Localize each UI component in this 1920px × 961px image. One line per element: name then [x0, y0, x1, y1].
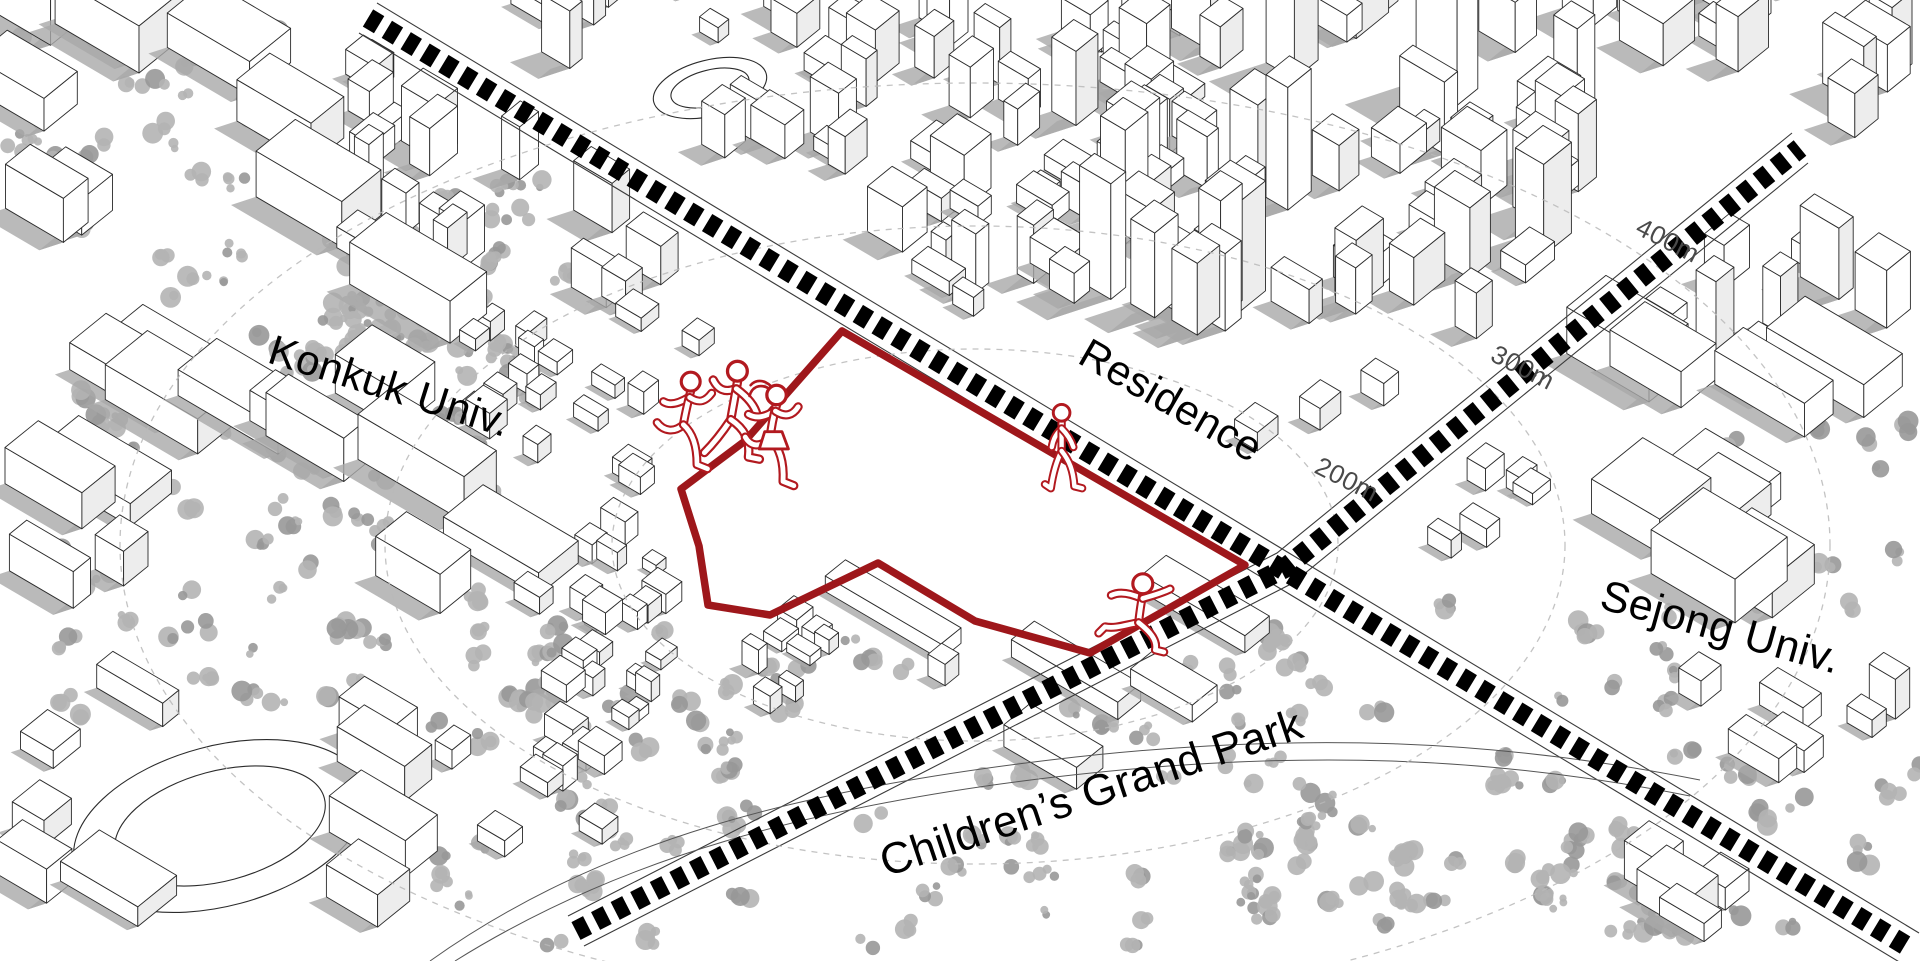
- tree-blob: [1847, 851, 1868, 872]
- tree-blob: [1023, 871, 1035, 883]
- tree-blob: [902, 658, 915, 671]
- tree-blob: [198, 613, 214, 629]
- tree-blob: [226, 184, 234, 192]
- tree-blob: [1293, 777, 1307, 791]
- tree-blob: [295, 518, 302, 525]
- tree-blob: [1318, 811, 1327, 820]
- tree-blob: [252, 687, 264, 699]
- tree-blob: [268, 502, 282, 516]
- tree-blob: [722, 689, 729, 696]
- building-face: [976, 224, 989, 294]
- tree-blob: [1757, 815, 1778, 836]
- building-face: [1288, 69, 1311, 211]
- tree-blob: [1050, 872, 1059, 881]
- tree-blob: [430, 879, 443, 892]
- tree-blob: [568, 875, 587, 894]
- tree-blob: [189, 502, 200, 513]
- tree-blob: [430, 712, 448, 730]
- tree-blob: [195, 173, 208, 186]
- tree-blob: [1359, 704, 1375, 720]
- tree-blob: [933, 882, 941, 890]
- tree-blob: [0, 138, 15, 153]
- tree-blob: [511, 199, 529, 217]
- tree-blob: [747, 805, 762, 820]
- tree-blob: [97, 138, 110, 151]
- tree-blob: [1287, 653, 1305, 671]
- tree-blob: [567, 856, 580, 869]
- tree-blob: [1238, 829, 1253, 844]
- tree-blob: [159, 79, 170, 90]
- tree-blob: [1687, 742, 1702, 757]
- tree-blob: [1141, 912, 1154, 925]
- tree-blob: [1351, 815, 1370, 834]
- tree-blob: [225, 239, 234, 248]
- tree-blob: [525, 706, 542, 723]
- tree-blob: [1856, 427, 1876, 447]
- tree-blob: [1499, 778, 1510, 789]
- tree-blob: [323, 506, 343, 526]
- tree-blob: [635, 930, 655, 950]
- tree-blob: [582, 780, 591, 789]
- tree-blob: [220, 278, 228, 286]
- tree-blob: [187, 672, 200, 685]
- tree-blob: [1589, 624, 1604, 639]
- building-face: [1052, 37, 1076, 125]
- tree-blob: [262, 693, 281, 712]
- tree-blob: [485, 252, 496, 263]
- tree-blob: [727, 762, 738, 773]
- tree-blob: [545, 626, 554, 635]
- tree-blob: [1265, 907, 1281, 923]
- tree-blob: [239, 172, 250, 183]
- tree-blob: [263, 533, 274, 544]
- tree-blob: [1872, 460, 1889, 477]
- tree-blob: [1004, 859, 1020, 875]
- tree-blob: [222, 248, 232, 258]
- tree-blob: [1224, 668, 1237, 681]
- tree-blob: [1129, 731, 1143, 745]
- tree-blob: [1885, 541, 1902, 558]
- tree-blob: [231, 681, 252, 702]
- tree-blob: [1389, 890, 1407, 908]
- tree-blob: [854, 814, 873, 833]
- tree-blob: [181, 620, 194, 633]
- building-face: [1839, 217, 1853, 300]
- tree-blob: [1126, 864, 1144, 882]
- tree-blob: [1844, 602, 1860, 618]
- tree-blob: [1244, 780, 1252, 788]
- tree-blob: [916, 884, 930, 898]
- tree-blob: [379, 633, 391, 645]
- tree-blob: [874, 806, 888, 820]
- tree-blob: [1240, 876, 1250, 886]
- tree-blob: [1610, 821, 1620, 831]
- tree-blob: [1256, 831, 1264, 839]
- tree-blob: [1125, 938, 1140, 953]
- tree-blob: [550, 276, 560, 286]
- tree-blob: [1389, 849, 1401, 861]
- tree-blob: [1369, 825, 1376, 832]
- tree-blob: [1426, 893, 1442, 909]
- tree-blob: [335, 318, 343, 326]
- tree-blob: [1253, 874, 1262, 883]
- tree-blob: [631, 742, 650, 761]
- tree-blob: [1556, 695, 1568, 707]
- tree-blob: [125, 78, 135, 88]
- tree-blob: [54, 641, 66, 653]
- tree-blob: [435, 867, 448, 880]
- tree-blob: [70, 704, 91, 725]
- tree-blob: [1569, 822, 1589, 842]
- tree-blob: [1826, 562, 1836, 572]
- tree-blob: [1040, 906, 1048, 914]
- tree-blob: [1315, 679, 1333, 697]
- tree-blob: [1667, 749, 1683, 765]
- tree-blob: [361, 513, 374, 526]
- tree-blob: [1269, 891, 1280, 902]
- tree-blob: [726, 888, 738, 900]
- tree-blob: [1262, 638, 1277, 653]
- tree-blob: [202, 271, 211, 280]
- tree-blob: [236, 248, 246, 258]
- tree-blob: [1251, 914, 1262, 925]
- building-face: [1225, 241, 1241, 331]
- tree-blob: [280, 698, 288, 706]
- tree-blob: [671, 696, 688, 713]
- tree-blob: [363, 635, 377, 649]
- tree-blob: [655, 621, 673, 639]
- tree-blob: [279, 584, 288, 593]
- tree-blob: [1785, 920, 1800, 935]
- tree-blob: [1144, 722, 1152, 730]
- building-face: [570, 1, 582, 68]
- tree-blob: [904, 914, 918, 928]
- tree-blob: [851, 634, 860, 643]
- tree-blob: [686, 711, 706, 731]
- tree-blob: [855, 934, 865, 944]
- tree-blob: [1604, 680, 1620, 696]
- tree-blob: [249, 325, 270, 346]
- tree-blob: [1549, 905, 1557, 913]
- tree-blob: [866, 941, 880, 955]
- tree-blob: [555, 800, 567, 812]
- tree-blob: [841, 636, 850, 645]
- tree-blob: [318, 315, 329, 326]
- tree-blob: [1502, 747, 1511, 756]
- tree-blob: [719, 736, 729, 746]
- building-face: [1131, 219, 1155, 318]
- tree-blob: [1898, 411, 1919, 432]
- tree-blob: [1795, 788, 1814, 807]
- tree-blob: [1515, 781, 1523, 789]
- tree-blob: [1729, 905, 1739, 915]
- tree-blob: [278, 493, 289, 504]
- tree-blob: [472, 624, 485, 637]
- tree-blob: [118, 611, 126, 619]
- tree-blob: [1407, 894, 1427, 914]
- tree-blob: [559, 622, 569, 632]
- tree-blob: [257, 542, 265, 550]
- tree-blob: [701, 744, 711, 754]
- building-face: [1457, 0, 1478, 105]
- tree-blob: [726, 728, 734, 736]
- tree-blob: [246, 650, 254, 658]
- tree-blob: [466, 647, 483, 664]
- building-face: [1266, 75, 1288, 210]
- tree-blob: [1442, 594, 1456, 608]
- tree-blob: [532, 170, 551, 189]
- tree-blob: [202, 674, 209, 681]
- tree-blob: [185, 169, 197, 181]
- tree-blob: [186, 272, 199, 285]
- tree-blob: [267, 594, 276, 603]
- tree-blob: [586, 870, 605, 889]
- tree-blob: [158, 122, 171, 135]
- tree-blob: [1304, 812, 1316, 824]
- tree-blob: [348, 507, 360, 519]
- building-face: [1241, 181, 1266, 311]
- tree-blob: [1236, 898, 1245, 907]
- tree-blob: [1374, 702, 1394, 722]
- tree-blob: [168, 138, 178, 148]
- building-face: [1578, 99, 1596, 191]
- tree-blob: [1561, 841, 1573, 853]
- tree-blob: [1325, 891, 1339, 905]
- tree-blob: [167, 633, 178, 644]
- tree-blob: [472, 728, 483, 739]
- tree-blob: [1650, 642, 1664, 656]
- tree-blob: [620, 832, 634, 846]
- tree-blob: [316, 686, 336, 706]
- tree-blob: [327, 618, 347, 638]
- tree-blob: [278, 516, 297, 535]
- tree-blob: [223, 172, 233, 182]
- tree-blob: [455, 901, 465, 911]
- tree-blob: [1287, 856, 1306, 875]
- tree-blob: [1444, 856, 1459, 871]
- tree-blob: [298, 560, 317, 579]
- tree-blob: [1850, 834, 1867, 851]
- tree-blob: [465, 892, 473, 900]
- tree-blob: [1604, 925, 1617, 938]
- tree-blob: [669, 844, 682, 857]
- tree-blob: [481, 732, 500, 751]
- tree-blob: [532, 659, 540, 667]
- site-map-canvas: Konkuk Univ. Residence Sejong Univ. Chil…: [0, 0, 1920, 961]
- tree-blob: [554, 934, 569, 949]
- tree-blob: [1253, 849, 1264, 860]
- tree-blob: [487, 342, 502, 357]
- tree-blob: [727, 736, 736, 745]
- tree-blob: [1880, 783, 1897, 800]
- tree-blob: [1349, 876, 1368, 895]
- tree-blob: [1380, 917, 1394, 931]
- tree-blob: [1219, 684, 1235, 700]
- tree-blob: [155, 250, 165, 260]
- tree-blob: [1724, 770, 1738, 784]
- tree-blob: [52, 694, 70, 712]
- building-face: [866, 50, 877, 106]
- tree-blob: [1540, 893, 1553, 906]
- tree-blob: [1219, 846, 1236, 863]
- tree-blob: [183, 88, 193, 98]
- tree-blob: [501, 214, 512, 225]
- tree-blob: [1247, 892, 1255, 900]
- tree-blob: [1622, 929, 1633, 940]
- tree-blob: [1785, 803, 1795, 813]
- tree-blob: [178, 591, 187, 600]
- tree-blob: [1509, 849, 1526, 866]
- tree-blob: [1559, 895, 1566, 902]
- tree-blob: [853, 654, 870, 671]
- tree-blob: [1296, 834, 1317, 855]
- tree-blob: [1327, 807, 1338, 818]
- tree-blob: [1073, 712, 1080, 719]
- tree-blob: [1536, 871, 1550, 885]
- tree-blob: [169, 291, 178, 300]
- tree-blob: [1659, 704, 1673, 718]
